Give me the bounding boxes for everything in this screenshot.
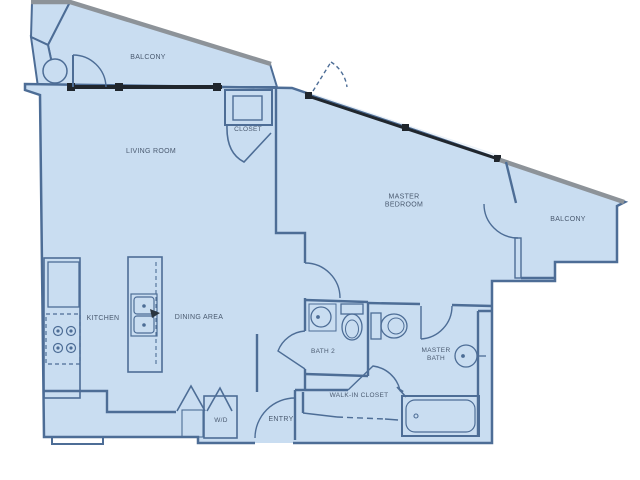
floor-plan: BALCONY LIVING ROOM CLOSET MASTER BEDROO… xyxy=(0,0,640,480)
balcony-top-left xyxy=(31,2,277,87)
label-bath-2: BATH 2 xyxy=(311,348,335,356)
label-dining-area: DINING AREA xyxy=(175,314,223,322)
label-living-room: LIVING ROOM xyxy=(126,148,176,156)
label-master-bath: MASTER BATH xyxy=(418,347,454,363)
label-balcony-right: BALCONY xyxy=(550,216,586,224)
label-walk-in-closet: WALK-IN CLOSET xyxy=(330,392,389,400)
label-entry: ENTRY xyxy=(268,416,293,424)
floor-plan-drawing xyxy=(0,0,640,480)
dashed-door-swing xyxy=(313,62,347,91)
label-wd: W/D xyxy=(214,417,228,425)
label-closet: CLOSET xyxy=(234,126,262,134)
balcony-table xyxy=(43,59,67,83)
label-balcony-top: BALCONY xyxy=(130,54,166,62)
label-master-bedroom: MASTER BEDROOM xyxy=(380,194,428,211)
balcony-floor xyxy=(48,2,277,87)
label-kitchen: KITCHEN xyxy=(87,315,120,323)
